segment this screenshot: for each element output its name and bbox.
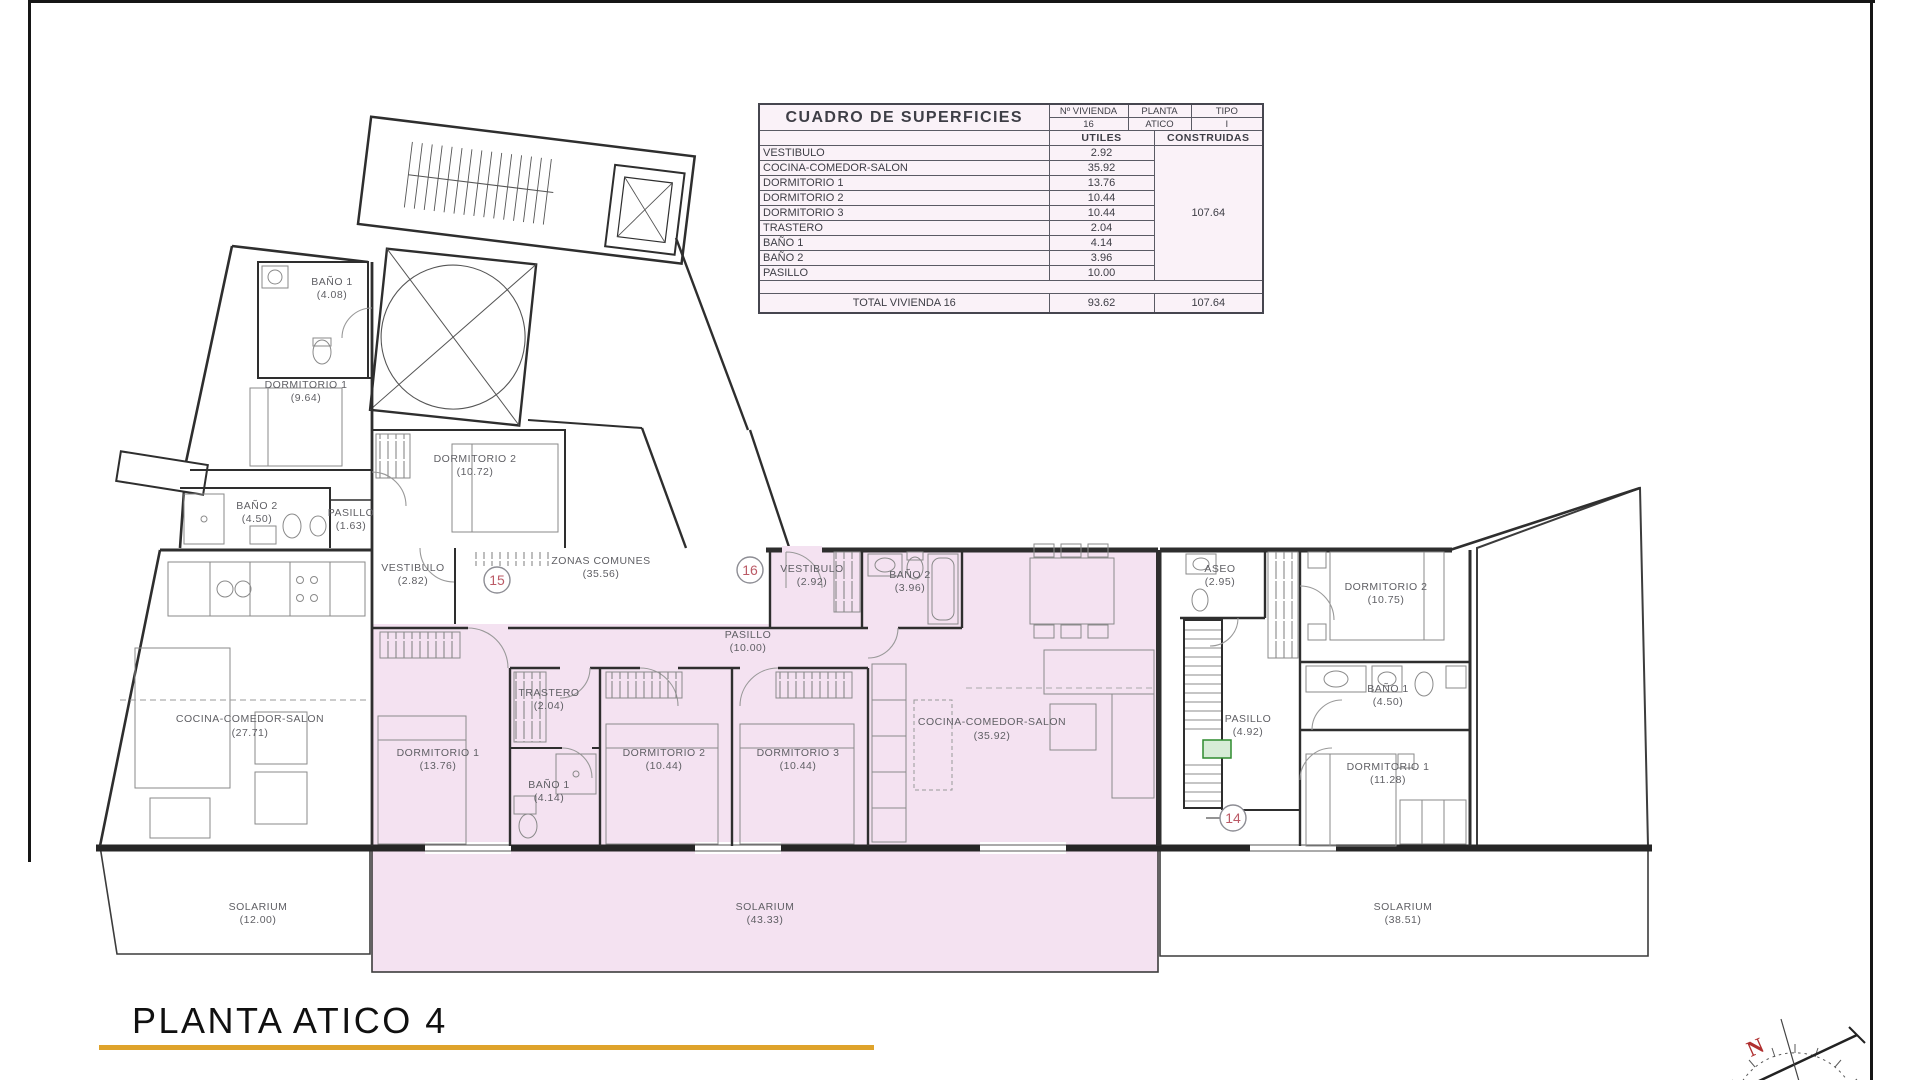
label-u15-dorm2: DORMITORIO 2 (434, 453, 517, 465)
label-u14-dorm2-area: (10.75) (1368, 594, 1405, 606)
table-title: CUADRO DE SUPERFICIES (759, 104, 1049, 131)
label-u15-dorm2-area: (10.72) (457, 466, 494, 478)
cell-room-name: DORMITORIO 1 (759, 176, 1049, 191)
cell-room-name: DORMITORIO 2 (759, 191, 1049, 206)
unit-badge-15-number: 15 (489, 572, 505, 588)
cell-utiles: 3.96 (1049, 251, 1154, 266)
label-u16-dorm3: DORMITORIO 3 (757, 747, 840, 759)
cell-room-name: DORMITORIO 3 (759, 206, 1049, 221)
cell-room-name: BAÑO 1 (759, 236, 1049, 251)
label-u16-dorm1-area: (13.76) (420, 760, 457, 772)
label-u16-cocina-area: (35.92) (974, 730, 1011, 742)
col-header-planta: PLANTA (1128, 104, 1191, 118)
label-u14-pasillo-area: (4.92) (1233, 726, 1263, 738)
label-u14-bano1: BAÑO 1 (1367, 682, 1409, 695)
unit-tipo-value: I (1191, 118, 1263, 131)
cell-utiles: 2.92 (1049, 146, 1154, 161)
label-u14-dorm1-area: (11.28) (1370, 774, 1406, 786)
empty-cell (759, 131, 1049, 146)
label-u16-bano1-area: (4.14) (534, 792, 564, 804)
compass-icon: N (1719, 1019, 1865, 1080)
cell-utiles: 13.76 (1049, 176, 1154, 191)
label-u16-pasillo: PASILLO (725, 629, 772, 641)
label-u16-trastero: TRASTERO (518, 687, 579, 699)
title-underline (99, 1045, 874, 1050)
cell-utiles: 10.44 (1049, 206, 1154, 221)
label-u16-bano2: BAÑO 2 (889, 568, 931, 581)
label-u14-bano1-area: (4.50) (1373, 696, 1403, 708)
table-area-header-row: UTILES CONSTRUIDAS (759, 131, 1263, 146)
unit-planta-value: ATICO (1128, 118, 1191, 131)
spacer-cell (759, 281, 1263, 294)
compass-north-letter: N (1743, 1032, 1768, 1061)
label-solarium-center-area: (43.33) (747, 914, 784, 926)
label-u16-dorm2: DORMITORIO 2 (623, 747, 706, 759)
label-u15-vestibulo: VESTIBULO (381, 562, 444, 574)
label-u16-trastero-area: (2.04) (534, 700, 564, 712)
label-u15-cocina: COCINA-COMEDOR-SALON (176, 713, 324, 725)
label-solarium-center: SOLARIUM (736, 901, 795, 913)
cell-utiles: 2.04 (1049, 221, 1154, 236)
label-u15-dorm1: DORMITORIO 1 (265, 379, 348, 391)
table-spacer-row (759, 281, 1263, 294)
cell-utiles: 35.92 (1049, 161, 1154, 176)
unit-15-living-walls (120, 562, 370, 838)
col-header-vivienda: Nº VIVIENDA (1049, 104, 1128, 118)
label-u14-aseo: ASEO (1204, 563, 1235, 575)
cell-utiles: 4.14 (1049, 236, 1154, 251)
label-u16-pasillo-area: (10.00) (730, 642, 767, 654)
cell-room-name: BAÑO 2 (759, 251, 1049, 266)
table-header-row: CUADRO DE SUPERFICIES Nº VIVIENDA PLANTA… (759, 104, 1263, 118)
unit-badge-14: 14 (1220, 805, 1246, 831)
cell-total-utiles: 93.62 (1049, 294, 1154, 314)
label-u15-vestibulo-area: (2.82) (398, 575, 428, 587)
label-u15-cocina-area: (27.71) (232, 727, 269, 739)
stair-tower (358, 117, 790, 550)
page-title: PLANTA ATICO 4 (132, 1000, 448, 1042)
cell-construidas-total: 107.64 (1154, 146, 1263, 281)
floor-plan-sheet: BAÑO 1 (4.08) DORMITORIO 1 (9.64) DORMIT… (0, 0, 1920, 1080)
label-u15-pasillo-area: (1.63) (336, 520, 366, 532)
label-u16-bano1: BAÑO 1 (528, 778, 570, 791)
unit-vivienda-value: 16 (1049, 118, 1128, 131)
cell-room-name: COCINA-COMEDOR-SALON (759, 161, 1049, 176)
unit-badge-16: 16 (737, 557, 763, 583)
label-u15-bano1: BAÑO 1 (311, 275, 353, 288)
unit-badge-16-number: 16 (742, 562, 758, 578)
label-u15-bano2: BAÑO 2 (236, 499, 278, 512)
col-header-utiles: UTILES (1049, 131, 1154, 146)
label-u14-dorm1: DORMITORIO 1 (1347, 761, 1430, 773)
col-header-construidas: CONSTRUIDAS (1154, 131, 1263, 146)
cell-total-construidas: 107.64 (1154, 294, 1263, 314)
cell-utiles: 10.44 (1049, 191, 1154, 206)
label-u16-dorm1: DORMITORIO 1 (397, 747, 480, 759)
label-solarium-right: SOLARIUM (1374, 901, 1433, 913)
cell-room-name: PASILLO (759, 266, 1049, 281)
label-u16-vestibulo: VESTIBULO (780, 563, 843, 575)
label-zonas-comunes-area: (35.56) (583, 568, 620, 580)
label-u16-bano2-area: (3.96) (895, 582, 925, 594)
table-total-row: TOTAL VIVIENDA 16 93.62 107.64 (759, 294, 1263, 314)
label-solarium-left: SOLARIUM (229, 901, 288, 913)
cell-room-name: TRASTERO (759, 221, 1049, 236)
unit-badge-14-number: 14 (1225, 810, 1241, 826)
label-zonas-comunes: ZONAS COMUNES (551, 555, 650, 567)
label-solarium-right-area: (38.51) (1385, 914, 1422, 926)
label-u14-pasillo: PASILLO (1225, 713, 1272, 725)
stair-highlight-marker (1203, 740, 1231, 758)
label-u15-bano1-area: (4.08) (317, 289, 347, 301)
label-u15-pasillo: PASILLO (328, 507, 375, 519)
cell-room-name: VESTIBULO (759, 146, 1049, 161)
label-solarium-left-area: (12.00) (240, 914, 277, 926)
label-u16-vestibulo-area: (2.92) (797, 576, 827, 588)
unit-14-furniture (1186, 552, 1466, 846)
table-row: VESTIBULO 2.92 107.64 (759, 146, 1263, 161)
col-header-tipo: TIPO (1191, 104, 1263, 118)
surface-table: CUADRO DE SUPERFICIES Nº VIVIENDA PLANTA… (758, 103, 1264, 314)
label-u14-aseo-area: (2.95) (1205, 576, 1235, 588)
label-u15-bano2-area: (4.50) (242, 513, 272, 525)
cell-total-label: TOTAL VIVIENDA 16 (759, 294, 1049, 314)
cell-utiles: 10.00 (1049, 266, 1154, 281)
label-u16-dorm2-area: (10.44) (646, 760, 683, 772)
label-u14-dorm2: DORMITORIO 2 (1345, 581, 1428, 593)
label-u16-cocina: COCINA-COMEDOR-SALON (918, 716, 1066, 728)
label-u15-dorm1-area: (9.64) (291, 392, 321, 404)
label-u16-dorm3-area: (10.44) (780, 760, 817, 772)
unit-badge-15: 15 (484, 567, 510, 593)
